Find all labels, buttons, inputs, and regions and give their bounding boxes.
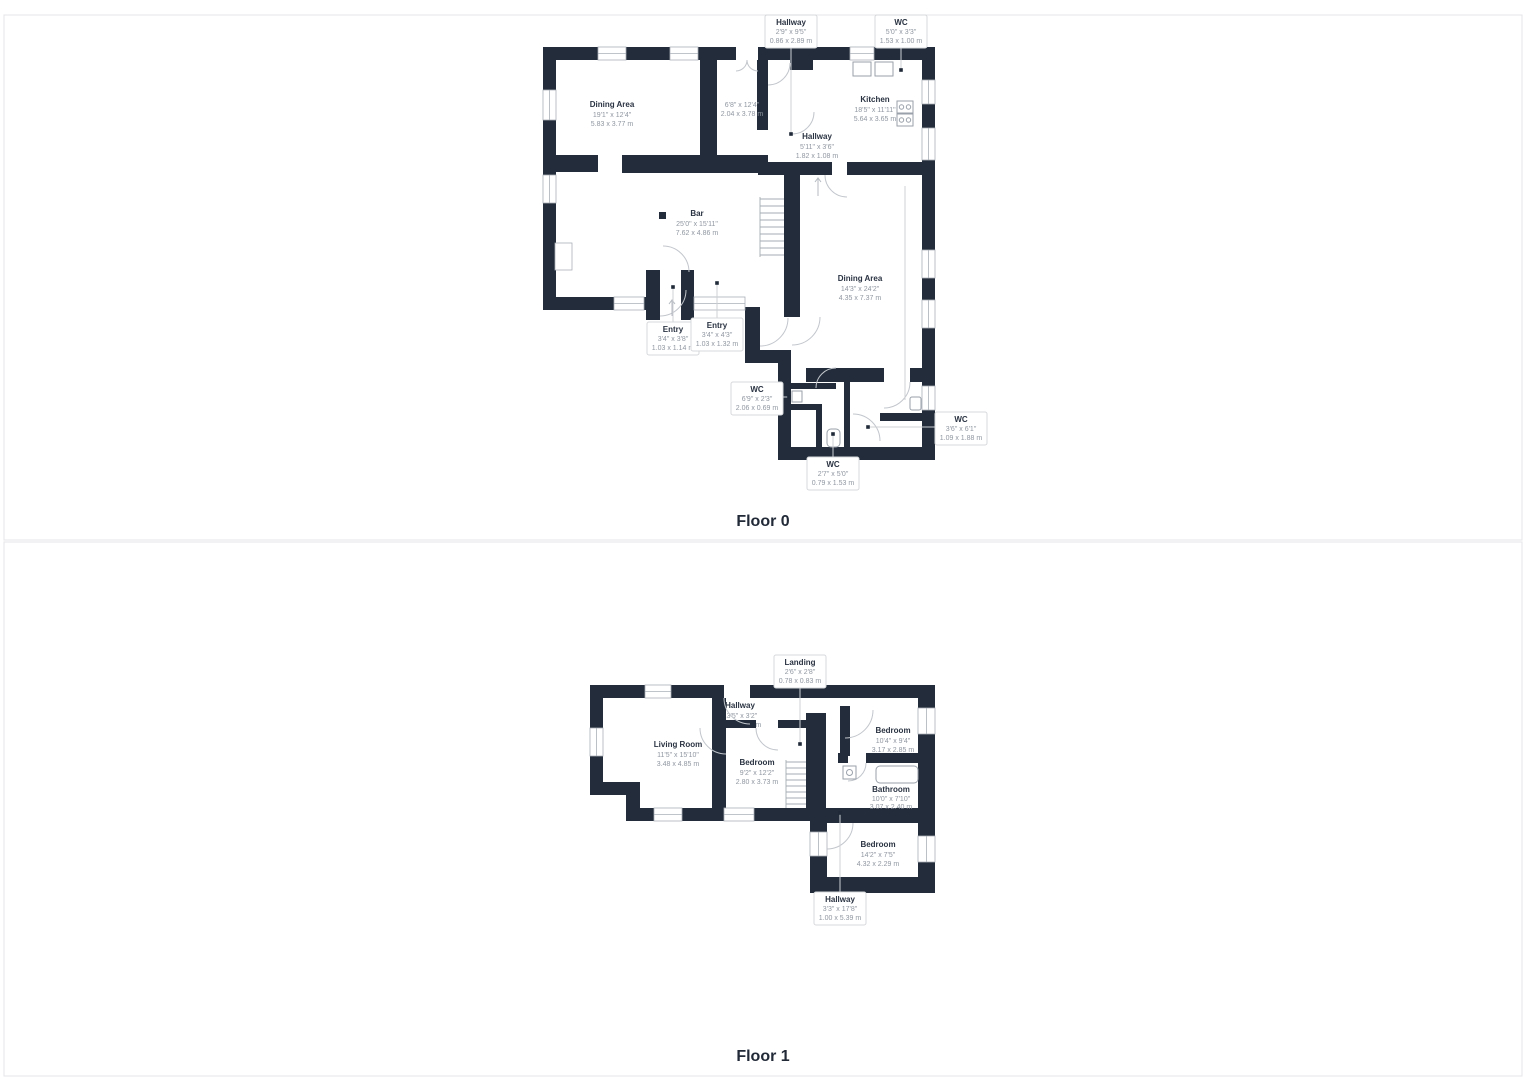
window (922, 80, 935, 104)
room-label-boxed: Hallway 3'3" x 17'8" 1.00 x 5.39 m (814, 892, 866, 925)
svg-text:10'4" x 9'4": 10'4" x 9'4" (876, 738, 911, 745)
room-label: Bathroom 10'0" x 7'10" 3.07 x 2.40 m (870, 785, 913, 811)
window (543, 175, 556, 203)
svg-text:1.00 x 5.39 m: 1.00 x 5.39 m (819, 915, 862, 922)
svg-text:Hallway: Hallway (776, 18, 806, 27)
room-label-boxed: WC 3'6" x 6'1" 1.09 x 1.88 m (935, 412, 987, 445)
svg-text:1.53 x 1.00 m: 1.53 x 1.00 m (880, 38, 923, 45)
svg-text:0.86 x 2.89 m: 0.86 x 2.89 m (770, 38, 813, 45)
svg-text:13'5" x 3'2": 13'5" x 3'2" (723, 713, 758, 720)
svg-text:Entry: Entry (707, 321, 728, 330)
window (543, 90, 556, 120)
room-label-boxed: Hallway 2'9" x 9'5" 0.86 x 2.89 m (765, 15, 817, 48)
svg-text:Kitchen: Kitchen (860, 95, 889, 104)
room-label-boxed: WC 2'7" x 5'0" 0.79 x 1.53 m (807, 457, 859, 490)
svg-text:Hallway: Hallway (825, 895, 855, 904)
svg-text:6'8" x 12'4": 6'8" x 12'4" (725, 102, 760, 109)
svg-text:Bedroom: Bedroom (875, 726, 910, 735)
svg-text:Bedroom: Bedroom (860, 840, 895, 849)
room-label-boxed: WC 5'0" x 3'3" 1.53 x 1.00 m (875, 15, 927, 48)
svg-text:18'5" x 11'11": 18'5" x 11'11" (854, 107, 896, 114)
floorplan-page: Dining Area 19'1" x 12'4" 5.83 x 3.77 m … (0, 0, 1527, 1080)
svg-text:Living Room: Living Room (654, 740, 702, 749)
svg-text:5'0" x 3'3": 5'0" x 3'3" (886, 29, 917, 36)
room-label: Bedroom 14'2" x 7'5" 4.32 x 2.29 m (857, 840, 900, 868)
svg-text:WC: WC (750, 385, 764, 394)
svg-text:0.79 x 1.53 m: 0.79 x 1.53 m (812, 480, 855, 487)
svg-text:10'0" x 7'10": 10'0" x 7'10" (872, 796, 911, 803)
room-label-boxed: Entry 3'4" x 4'3" 1.03 x 1.32 m (691, 318, 743, 351)
svg-text:5.83 x 3.77 m: 5.83 x 3.77 m (591, 121, 634, 128)
svg-text:1.82 x 1.08 m: 1.82 x 1.08 m (796, 153, 839, 160)
svg-text:1.03 x 1.32 m: 1.03 x 1.32 m (696, 341, 739, 348)
window (850, 47, 874, 60)
svg-text:2.80 x 3.73 m: 2.80 x 3.73 m (736, 779, 779, 786)
window (922, 250, 935, 278)
room-label: Living Room 11'5" x 15'10" 3.48 x 4.85 m (654, 740, 702, 768)
window (654, 808, 682, 821)
svg-text:1.03 x 1.14 m: 1.03 x 1.14 m (652, 345, 695, 352)
toilet (910, 397, 921, 410)
svg-text:3'6" x 6'1": 3'6" x 6'1" (946, 426, 977, 433)
room-label-boxed: WC 6'9" x 2'3" 2.06 x 0.69 m (731, 382, 783, 415)
svg-text:9'2" x 12'2": 9'2" x 12'2" (740, 770, 775, 777)
svg-text:Bar: Bar (690, 209, 703, 218)
svg-text:Hallway: Hallway (725, 701, 755, 710)
svg-text:Dining Area: Dining Area (590, 100, 635, 109)
svg-text:Bedroom: Bedroom (739, 758, 774, 767)
svg-text:2.06 x 0.69 m: 2.06 x 0.69 m (736, 405, 779, 412)
svg-text:3'3" x 17'8": 3'3" x 17'8" (823, 906, 858, 913)
bathtub (876, 766, 918, 783)
svg-text:2'9" x 9'5": 2'9" x 9'5" (776, 29, 807, 36)
window (918, 708, 935, 734)
svg-text:3'4" x 3'8": 3'4" x 3'8" (658, 336, 689, 343)
svg-text:Hallway: Hallway (802, 132, 832, 141)
svg-text:14'3" x 24'2": 14'3" x 24'2" (841, 286, 880, 293)
room-label: Bedroom 10'4" x 9'4" 3.17 x 2.85 m (872, 726, 915, 754)
floor1-caption: Floor 1 (736, 1048, 789, 1065)
room-label: Bedroom 9'2" x 12'2" 2.80 x 3.73 m (736, 758, 779, 786)
svg-text:2'7" x 5'0": 2'7" x 5'0" (818, 471, 849, 478)
column (659, 212, 666, 219)
window (614, 297, 644, 310)
room-label: Dining Area 19'1" x 12'4" 5.83 x 3.77 m (590, 100, 635, 128)
window (918, 836, 935, 862)
svg-text:3.17 x 2.85 m: 3.17 x 2.85 m (872, 747, 915, 754)
floor0-stairs (760, 197, 784, 257)
svg-text:3.07 x 2.40 m: 3.07 x 2.40 m (870, 804, 913, 811)
svg-text:4.35 x 7.37 m: 4.35 x 7.37 m (839, 295, 882, 302)
svg-text:Entry: Entry (663, 325, 684, 334)
window (590, 728, 603, 756)
kitchen-sink (853, 62, 871, 76)
window (694, 297, 745, 310)
svg-text:Bathroom: Bathroom (872, 785, 910, 794)
svg-text:7.62 x 4.86 m: 7.62 x 4.86 m (676, 230, 719, 237)
window (922, 128, 935, 160)
svg-text:1.09 x 1.88 m: 1.09 x 1.88 m (940, 435, 983, 442)
svg-text:3'4" x 4'3": 3'4" x 4'3" (702, 332, 733, 339)
svg-text:Landing: Landing (784, 658, 815, 667)
svg-text:5'11" x 3'6": 5'11" x 3'6" (800, 144, 834, 151)
svg-text:14'2" x 7'5": 14'2" x 7'5" (861, 852, 896, 859)
svg-text:WC: WC (826, 460, 840, 469)
kitchen-sink (875, 62, 893, 76)
floor0-caption: Floor 0 (736, 513, 789, 530)
svg-text:WC: WC (894, 18, 908, 27)
window (810, 832, 827, 856)
svg-text:2.04 x 3.78 m: 2.04 x 3.78 m (721, 111, 764, 118)
sink (792, 391, 802, 402)
window (922, 300, 935, 328)
svg-text:4.32 x 2.29 m: 4.32 x 2.29 m (857, 861, 900, 868)
svg-text:19'1" x 12'4": 19'1" x 12'4" (593, 112, 632, 119)
svg-text:2'6" x 2'8": 2'6" x 2'8" (785, 669, 816, 676)
room-label: Dining Area 14'3" x 24'2" 4.35 x 7.37 m (838, 274, 883, 302)
svg-text:5.64 x 3.65 m: 5.64 x 3.65 m (854, 116, 897, 123)
sink-bowl (847, 770, 853, 776)
svg-text:3.48 x 4.85 m: 3.48 x 4.85 m (657, 761, 700, 768)
window (724, 808, 754, 821)
room-label-boxed: Landing 2'6" x 2'8" 0.78 x 0.83 m (774, 655, 826, 688)
window (922, 386, 935, 410)
svg-text:25'0" x 15'11": 25'0" x 15'11" (676, 221, 718, 228)
svg-text:6'9" x 2'3": 6'9" x 2'3" (742, 396, 773, 403)
svg-text:Dining Area: Dining Area (838, 274, 883, 283)
svg-text:WC: WC (954, 415, 968, 424)
window (670, 47, 698, 60)
bay-window (555, 243, 572, 270)
svg-text:11'5" x 15'10": 11'5" x 15'10" (657, 752, 699, 759)
svg-text:0.78 x 0.83 m: 0.78 x 0.83 m (779, 678, 822, 685)
window (645, 685, 671, 698)
window (598, 47, 626, 60)
